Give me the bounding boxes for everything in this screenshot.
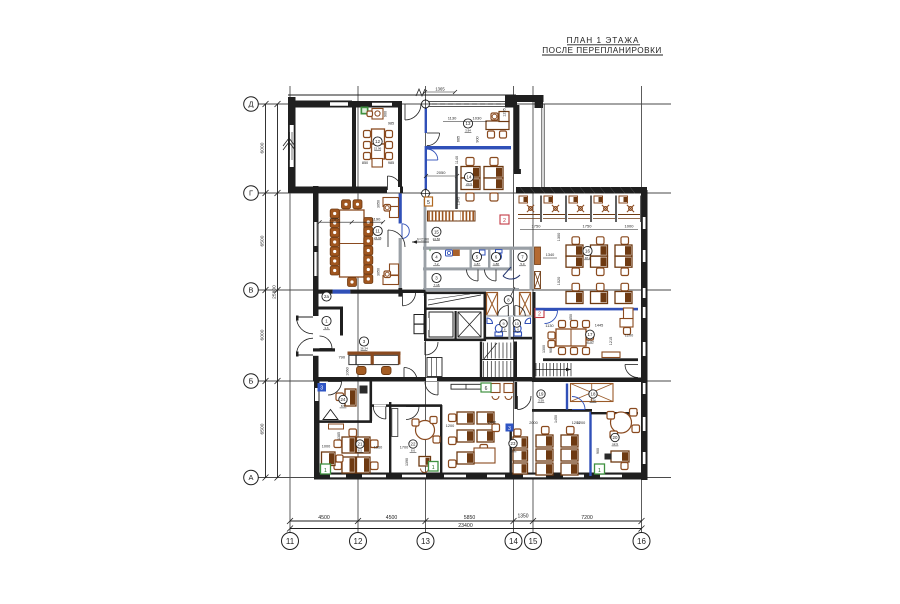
svg-text:15.96: 15.96 bbox=[374, 147, 382, 151]
svg-text:3: 3 bbox=[508, 426, 511, 432]
svg-text:48.2: 48.2 bbox=[585, 256, 591, 260]
svg-text:24: 24 bbox=[341, 397, 346, 402]
svg-text:1.6: 1.6 bbox=[515, 328, 520, 332]
svg-text:4500: 4500 bbox=[318, 515, 330, 521]
svg-text:1000: 1000 bbox=[625, 224, 635, 229]
svg-text:24.96: 24.96 bbox=[374, 236, 382, 240]
svg-text:23400: 23400 bbox=[458, 523, 473, 529]
svg-text:Г: Г bbox=[249, 189, 253, 198]
svg-text:1345: 1345 bbox=[456, 197, 460, 205]
svg-text:19: 19 bbox=[539, 392, 544, 397]
svg-text:20: 20 bbox=[613, 435, 618, 440]
svg-text:7.2: 7.2 bbox=[434, 262, 439, 266]
svg-text:13: 13 bbox=[421, 537, 430, 546]
svg-text:3.84: 3.84 bbox=[465, 129, 471, 133]
svg-text:17: 17 bbox=[588, 332, 593, 337]
svg-text:900: 900 bbox=[596, 448, 600, 454]
svg-text:1440: 1440 bbox=[488, 421, 496, 425]
svg-text:2: 2 bbox=[538, 312, 541, 318]
svg-text:1365: 1365 bbox=[435, 87, 445, 92]
svg-text:2а: 2а bbox=[324, 294, 329, 299]
svg-text:21: 21 bbox=[358, 442, 363, 447]
svg-text:7.18: 7.18 bbox=[434, 283, 440, 287]
svg-text:1750: 1750 bbox=[532, 224, 542, 229]
svg-text:4500: 4500 bbox=[386, 515, 398, 521]
svg-text:20.9: 20.9 bbox=[466, 182, 472, 186]
svg-text:1200: 1200 bbox=[446, 424, 454, 428]
svg-text:Б: Б bbox=[249, 377, 254, 386]
svg-text:1215: 1215 bbox=[609, 337, 613, 345]
svg-text:1390: 1390 bbox=[405, 458, 409, 466]
svg-text:1190: 1190 bbox=[372, 216, 381, 221]
svg-text:3.6: 3.6 bbox=[324, 326, 329, 330]
svg-text:3.96: 3.96 bbox=[590, 399, 596, 403]
svg-text:1140: 1140 bbox=[455, 156, 459, 164]
svg-text:1130: 1130 bbox=[448, 116, 457, 121]
svg-text:1.6: 1.6 bbox=[501, 328, 506, 332]
svg-text:665: 665 bbox=[457, 136, 461, 142]
svg-text:9: 9 bbox=[502, 322, 504, 326]
svg-text:1445: 1445 bbox=[595, 324, 603, 328]
svg-text:1130: 1130 bbox=[545, 324, 553, 328]
svg-text:36.34: 36.34 bbox=[360, 347, 368, 351]
svg-text:1000: 1000 bbox=[322, 445, 330, 449]
svg-text:1385: 1385 bbox=[337, 432, 341, 440]
svg-text:8.5: 8.5 bbox=[341, 404, 346, 408]
svg-text:1: 1 bbox=[598, 468, 601, 474]
svg-text:1.88: 1.88 bbox=[493, 262, 499, 266]
svg-text:11: 11 bbox=[286, 537, 295, 546]
svg-text:1700: 1700 bbox=[400, 446, 408, 450]
svg-text:1450: 1450 bbox=[554, 415, 558, 423]
svg-text:2000: 2000 bbox=[529, 421, 537, 425]
svg-text:3.99: 3.99 bbox=[538, 399, 544, 403]
svg-text:1020: 1020 bbox=[557, 277, 561, 285]
svg-text:22: 22 bbox=[411, 442, 416, 447]
svg-text:23: 23 bbox=[511, 441, 516, 446]
svg-text:8.6: 8.6 bbox=[511, 448, 516, 452]
svg-text:ПЛАН 1 ЭТАЖА: ПЛАН 1 ЭТАЖА bbox=[567, 36, 640, 45]
svg-text:1340: 1340 bbox=[546, 253, 554, 257]
svg-text:6500: 6500 bbox=[260, 423, 266, 434]
svg-text:10: 10 bbox=[515, 322, 519, 326]
svg-text:6500: 6500 bbox=[260, 235, 266, 246]
svg-text:6000: 6000 bbox=[260, 142, 266, 153]
svg-text:2: 2 bbox=[503, 218, 506, 224]
svg-text:2050: 2050 bbox=[437, 170, 447, 175]
svg-text:16: 16 bbox=[637, 537, 646, 546]
svg-text:985: 985 bbox=[388, 161, 394, 165]
svg-text:8.6: 8.6 bbox=[411, 449, 416, 453]
svg-text:1750: 1750 bbox=[583, 224, 593, 229]
svg-text:7200: 7200 bbox=[581, 515, 593, 521]
svg-text:2285: 2285 bbox=[330, 216, 340, 221]
svg-text:985: 985 bbox=[388, 122, 394, 126]
svg-text:850: 850 bbox=[362, 161, 368, 165]
svg-text:850: 850 bbox=[569, 314, 573, 320]
svg-text:6000: 6000 bbox=[260, 329, 266, 340]
svg-text:1235: 1235 bbox=[503, 108, 507, 116]
svg-text:1030: 1030 bbox=[473, 116, 483, 121]
svg-text:15: 15 bbox=[529, 537, 538, 546]
svg-text:16: 16 bbox=[585, 249, 590, 254]
svg-text:1560: 1560 bbox=[374, 446, 382, 450]
svg-text:3: 3 bbox=[320, 386, 323, 392]
svg-text:8.5: 8.5 bbox=[358, 449, 363, 453]
svg-text:25800: 25800 bbox=[272, 285, 278, 299]
svg-text:1: 1 bbox=[324, 468, 327, 474]
svg-text:12: 12 bbox=[354, 537, 363, 546]
svg-text:6: 6 bbox=[485, 386, 488, 392]
svg-text:11: 11 bbox=[375, 229, 380, 234]
svg-text:1300: 1300 bbox=[557, 233, 561, 241]
svg-text:18: 18 bbox=[591, 392, 596, 397]
svg-text:900: 900 bbox=[384, 111, 388, 117]
svg-text:12: 12 bbox=[375, 139, 380, 144]
svg-text:5850: 5850 bbox=[464, 515, 476, 521]
svg-text:ПОСЛЕ ПЕРЕПЛАНИРОВКИ: ПОСЛЕ ПЕРЕПЛАНИРОВКИ bbox=[542, 46, 662, 55]
svg-text:1060: 1060 bbox=[345, 367, 349, 375]
svg-text:3050: 3050 bbox=[377, 200, 381, 208]
svg-text:В: В bbox=[249, 286, 254, 295]
svg-text:Д: Д bbox=[248, 100, 253, 109]
svg-text:14: 14 bbox=[467, 175, 472, 180]
svg-text:15: 15 bbox=[434, 229, 439, 234]
svg-text:1300: 1300 bbox=[542, 345, 546, 353]
svg-text:17.04: 17.04 bbox=[586, 339, 594, 343]
svg-text:1200: 1200 bbox=[572, 421, 580, 425]
svg-text:24.56: 24.56 bbox=[433, 237, 441, 241]
svg-text:А: А bbox=[249, 473, 254, 482]
svg-text:1350: 1350 bbox=[517, 514, 528, 520]
svg-text:1200: 1200 bbox=[625, 334, 633, 338]
svg-text:1: 1 bbox=[432, 465, 435, 471]
svg-text:1.87: 1.87 bbox=[474, 262, 480, 266]
svg-text:12.9: 12.9 bbox=[612, 442, 618, 446]
svg-text:5.9: 5.9 bbox=[520, 262, 525, 266]
svg-text:900: 900 bbox=[549, 347, 553, 353]
svg-text:900: 900 bbox=[476, 136, 480, 142]
svg-text:3050: 3050 bbox=[377, 268, 381, 276]
svg-text:h=2100: h=2100 bbox=[417, 238, 429, 242]
svg-text:14: 14 bbox=[509, 537, 518, 546]
svg-text:5: 5 bbox=[427, 200, 430, 206]
svg-text:790: 790 bbox=[338, 354, 345, 359]
